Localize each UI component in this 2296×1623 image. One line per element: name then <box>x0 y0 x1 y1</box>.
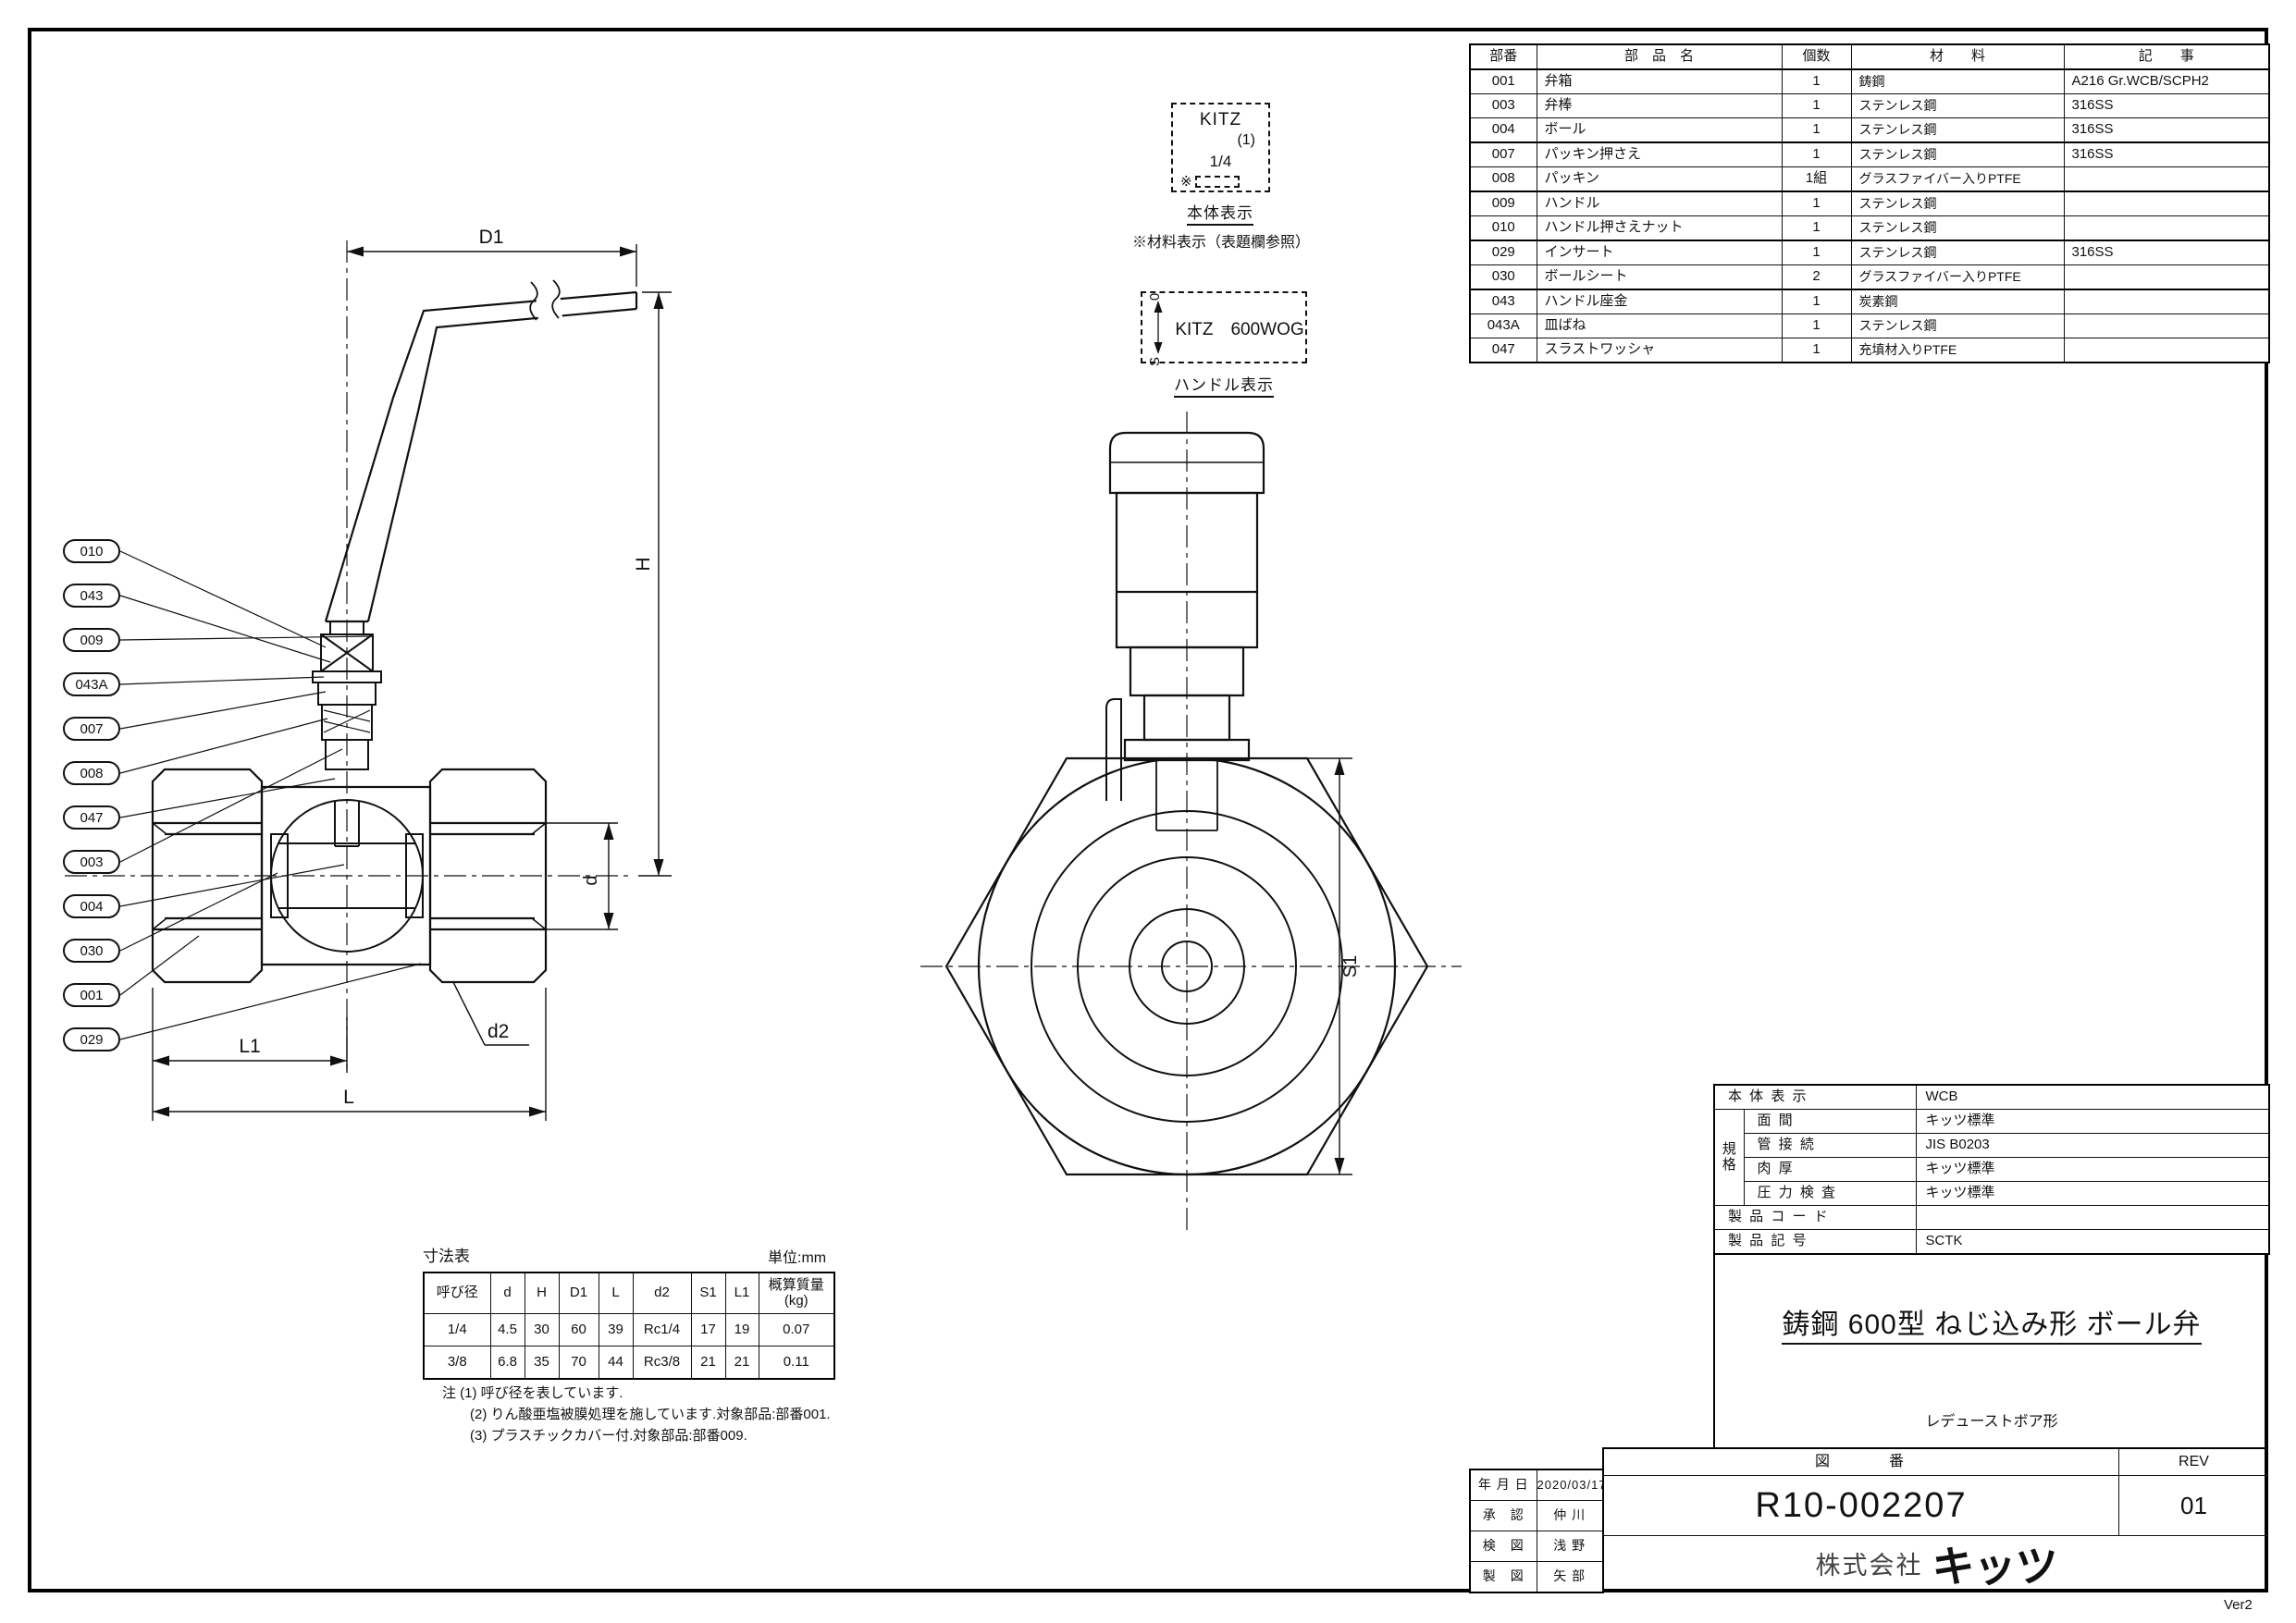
callout-004: 004 <box>63 894 120 918</box>
table-row: 047スラストワッシャ1充填材入りPTFE <box>1470 338 2269 363</box>
cell: 0.07 <box>759 1314 834 1346</box>
col-qty: 個数 <box>1782 44 1851 69</box>
callout-label: 010 <box>80 544 103 559</box>
spec-label: 圧 力 検 査 <box>1744 1182 1916 1206</box>
part-remarks: 316SS <box>2064 240 2269 265</box>
callout-029: 029 <box>63 1027 120 1051</box>
cell: 19 <box>725 1314 759 1346</box>
part-name: ボール <box>1537 118 1782 143</box>
col-remarks: 記 事 <box>2064 44 2269 69</box>
callout-label: 009 <box>80 633 103 648</box>
callout-009: 009 <box>63 628 120 652</box>
part-material: ステンレス鋼 <box>1851 216 2064 241</box>
table-row: 003弁棒1ステンレス鋼316SS <box>1470 94 2269 118</box>
part-no: 001 <box>1470 69 1537 94</box>
part-remarks <box>2064 167 2269 192</box>
callout-label: 043 <box>80 588 103 604</box>
part-qty: 1 <box>1782 216 1851 241</box>
drawing-subtitle: レデューストボア形 <box>1715 1408 2268 1431</box>
table-row: 3/86.8357044Rc3/821210.11 <box>424 1346 834 1380</box>
callout-label: 003 <box>80 855 103 870</box>
callout-003: 003 <box>63 850 120 874</box>
part-qty: 1 <box>1782 94 1851 118</box>
part-name: ハンドル押さえナット <box>1537 216 1782 241</box>
col-part-name: 部 品 名 <box>1537 44 1782 69</box>
part-remarks <box>2064 216 2269 241</box>
body-marking-size: 1/4 <box>1173 153 1268 171</box>
spec-value: キッツ標準 <box>1916 1110 2269 1134</box>
spec-value: キッツ標準 <box>1916 1182 2269 1206</box>
rev-header: REV <box>2119 1449 2268 1476</box>
cell: 44 <box>599 1346 633 1380</box>
table-row: 承 認 仲 川 <box>1470 1501 1603 1531</box>
table-row: 規 格 面 間 キッツ標準 <box>1714 1110 2269 1134</box>
part-qty: 1組 <box>1782 167 1851 192</box>
version-tag: Ver2 <box>2224 1597 2253 1613</box>
table-row: 肉 厚 キッツ標準 <box>1714 1158 2269 1182</box>
callout-label: 007 <box>80 721 103 737</box>
cell: 4.5 <box>490 1314 525 1346</box>
part-qty: 1 <box>1782 240 1851 265</box>
cell: 6.8 <box>490 1346 525 1380</box>
table-row: 029インサート1ステンレス鋼316SS <box>1470 240 2269 265</box>
dim-table-title: 寸法表 <box>423 1243 470 1266</box>
spec-value: WCB <box>1916 1085 2269 1110</box>
drawing-title: 鋳鋼 600型 ねじ込み形 ボール弁 <box>1715 1301 2268 1342</box>
handle-marking-caption-text: ハンドル表示 <box>1174 376 1274 398</box>
rev-number: 01 <box>2119 1476 2268 1535</box>
spec-label: 面 間 <box>1744 1110 1916 1134</box>
part-qty: 1 <box>1782 191 1851 216</box>
part-no: 008 <box>1470 167 1537 192</box>
col-part-no: 部番 <box>1470 44 1537 69</box>
appr-label: 承 認 <box>1470 1501 1537 1531</box>
appr-label: 製 図 <box>1470 1562 1537 1593</box>
group-char: 規 <box>1715 1142 1744 1158</box>
spec-value: JIS B0203 <box>1916 1134 2269 1158</box>
body-marking-note-ref: (1) <box>1237 132 1255 149</box>
table-row: 043A皿ばね1ステンレス鋼 <box>1470 314 2269 338</box>
spec-label: 管 接 続 <box>1744 1134 1916 1158</box>
appr-value: 浅 野 <box>1537 1531 1603 1562</box>
col-L: L <box>599 1273 633 1314</box>
reference-mark: ※ <box>1180 173 1192 190</box>
part-no: 004 <box>1470 118 1537 143</box>
part-remarks <box>2064 314 2269 338</box>
handle-marking-box <box>1141 291 1307 363</box>
cell: 70 <box>559 1346 599 1380</box>
part-material: ステンレス鋼 <box>1851 240 2064 265</box>
callout-010: 010 <box>63 539 120 563</box>
parts-table: 部番 部 品 名 個数 材 料 記 事 001弁箱1鋳鋼A216 Gr.WCB/… <box>1469 43 2270 363</box>
col-mass-line1: 概算質量 <box>759 1278 834 1294</box>
part-qty: 1 <box>1782 338 1851 363</box>
group-char: 格 <box>1715 1158 1744 1174</box>
part-qty: 1 <box>1782 118 1851 143</box>
spec-group-kikaku: 規 格 <box>1714 1110 1744 1206</box>
part-no: 043 <box>1470 289 1537 314</box>
table-row: 007パッキン押さえ1ステンレス鋼316SS <box>1470 142 2269 167</box>
table-row: 030ボールシート2グラスファイバー入りPTFE <box>1470 265 2269 290</box>
drawing-number-block: 図 番 REV R10-002207 01 株式会社 キッツ <box>1602 1447 2268 1591</box>
title-area: 鋳鋼 600型 ねじ込み形 ボール弁 レデューストボア形 <box>1713 1246 2268 1447</box>
drawing-sheet: D1 H d L1 L d2 <box>0 0 2296 1623</box>
spec-label: 肉 厚 <box>1744 1158 1916 1182</box>
col-mass: 概算質量 (kg) <box>759 1273 834 1314</box>
table-row: 製 図 矢 部 <box>1470 1562 1603 1593</box>
col-mass-line2: (kg) <box>759 1294 834 1309</box>
part-material: グラスファイバー入りPTFE <box>1851 167 2064 192</box>
drawing-number-header: 図 番 <box>1604 1449 2119 1476</box>
cell: 17 <box>691 1314 725 1346</box>
callout-047: 047 <box>63 805 120 830</box>
col-D1: D1 <box>559 1273 599 1314</box>
col-L1: L1 <box>725 1273 759 1314</box>
part-material: 鋳鋼 <box>1851 69 2064 94</box>
callout-label: 043A <box>75 677 107 693</box>
part-name: 弁箱 <box>1537 69 1782 94</box>
part-remarks <box>2064 338 2269 363</box>
note-2: (2) りん酸亜塩被膜処理を施しています.対象部品:部番001. <box>470 1404 831 1423</box>
col-H: H <box>525 1273 559 1314</box>
col-nominal: 呼び径 <box>424 1273 490 1314</box>
part-no: 010 <box>1470 216 1537 241</box>
drawing-title-text: 鋳鋼 600型 ねじ込み形 ボール弁 <box>1782 1309 2201 1345</box>
callout-001: 001 <box>63 983 120 1007</box>
part-qty: 1 <box>1782 289 1851 314</box>
appr-value: 2020/03/17 <box>1537 1469 1603 1501</box>
part-name: ハンドル <box>1537 191 1782 216</box>
drawing-number: R10-002207 <box>1604 1476 2119 1535</box>
spec-value <box>1916 1206 2269 1230</box>
part-material: ステンレス鋼 <box>1851 118 2064 143</box>
callout-043A: 043A <box>63 672 120 696</box>
cell: 21 <box>691 1346 725 1380</box>
part-name: ボールシート <box>1537 265 1782 290</box>
note-1: 注 (1) 呼び径を表しています. <box>442 1383 623 1402</box>
table-row: 043ハンドル座金1炭素鋼 <box>1470 289 2269 314</box>
cell: 21 <box>725 1346 759 1380</box>
part-material: 充填材入りPTFE <box>1851 338 2064 363</box>
spec-table: 本 体 表 示 WCB 規 格 面 間 キッツ標準 管 接 続 JIS B020… <box>1713 1084 2270 1255</box>
cell: 39 <box>599 1314 633 1346</box>
table-row: 本 体 表 示 WCB <box>1714 1085 2269 1110</box>
part-name: ハンドル座金 <box>1537 289 1782 314</box>
callout-030: 030 <box>63 939 120 963</box>
col-d: d <box>490 1273 525 1314</box>
parts-table-header: 部番 部 品 名 個数 材 料 記 事 <box>1470 44 2269 69</box>
callout-label: 001 <box>80 988 103 1003</box>
material-placeholder-box <box>1195 176 1240 188</box>
callout-008: 008 <box>63 761 120 785</box>
body-marking-caption: 本体表示 <box>1153 200 1288 223</box>
material-note: ※材料表示（表題欄参照） <box>1055 229 1388 252</box>
body-marking-box: KITZ (1) 1/4 ※ <box>1171 103 1270 192</box>
part-no: 047 <box>1470 338 1537 363</box>
appr-value: 矢 部 <box>1537 1562 1603 1593</box>
callout-label: 029 <box>80 1032 103 1048</box>
callout-label: 004 <box>80 899 103 915</box>
part-material: ステンレス鋼 <box>1851 314 2064 338</box>
kitz-logo: キッツ <box>1932 1533 2057 1594</box>
cell: 35 <box>525 1346 559 1380</box>
part-no: 030 <box>1470 265 1537 290</box>
cell: Rc1/4 <box>633 1314 691 1346</box>
appr-label: 年 月 日 <box>1470 1469 1537 1501</box>
part-name: 弁棒 <box>1537 94 1782 118</box>
part-remarks: 316SS <box>2064 94 2269 118</box>
part-no: 007 <box>1470 142 1537 167</box>
part-no: 009 <box>1470 191 1537 216</box>
table-row: 009ハンドル1ステンレス鋼 <box>1470 191 2269 216</box>
part-name: インサート <box>1537 240 1782 265</box>
cell: Rc3/8 <box>633 1346 691 1380</box>
callout-label: 030 <box>80 943 103 959</box>
part-remarks: 316SS <box>2064 118 2269 143</box>
part-remarks <box>2064 289 2269 314</box>
part-qty: 1 <box>1782 69 1851 94</box>
part-no: 003 <box>1470 94 1537 118</box>
approval-table: 年 月 日 2020/03/17 承 認 仲 川 検 図 浅 野 製 図 矢 部 <box>1469 1469 1604 1593</box>
part-material: ステンレス鋼 <box>1851 142 2064 167</box>
part-name: パッキン <box>1537 167 1782 192</box>
part-remarks <box>2064 191 2269 216</box>
part-remarks: 316SS <box>2064 142 2269 167</box>
part-material: ステンレス鋼 <box>1851 94 2064 118</box>
part-qty: 1 <box>1782 142 1851 167</box>
table-row: 検 図 浅 野 <box>1470 1531 1603 1562</box>
appr-label: 検 図 <box>1470 1531 1537 1562</box>
table-row: 年 月 日 2020/03/17 <box>1470 1469 1603 1501</box>
cell: 0.11 <box>759 1346 834 1380</box>
callout-label: 008 <box>80 766 103 781</box>
callout-007: 007 <box>63 717 120 741</box>
table-row: 008パッキン1組グラスファイバー入りPTFE <box>1470 167 2269 192</box>
part-material: 炭素鋼 <box>1851 289 2064 314</box>
col-d2: d2 <box>633 1273 691 1314</box>
part-material: ステンレス鋼 <box>1851 191 2064 216</box>
part-no: 029 <box>1470 240 1537 265</box>
callout-label: 047 <box>80 810 103 826</box>
handle-marking-caption: ハンドル表示 <box>1164 372 1284 395</box>
part-name: 皿ばね <box>1537 314 1782 338</box>
table-row: 製 品 コ ー ド <box>1714 1206 2269 1230</box>
part-name: パッキン押さえ <box>1537 142 1782 167</box>
company-prefix: 株式会社 <box>1816 1545 1923 1581</box>
part-name: スラストワッシャ <box>1537 338 1782 363</box>
table-row: 001弁箱1鋳鋼A216 Gr.WCB/SCPH2 <box>1470 69 2269 94</box>
body-marking-brand: KITZ <box>1173 110 1268 130</box>
part-remarks <box>2064 265 2269 290</box>
cell: 3/8 <box>424 1346 490 1380</box>
dimension-table: 呼び径 d H D1 L d2 S1 L1 概算質量 (kg) 1/44.530… <box>423 1272 835 1380</box>
callout-043: 043 <box>63 584 120 608</box>
part-no: 043A <box>1470 314 1537 338</box>
table-row: 管 接 続 JIS B0203 <box>1714 1134 2269 1158</box>
part-qty: 1 <box>1782 314 1851 338</box>
appr-value: 仲 川 <box>1537 1501 1603 1531</box>
table-row: 圧 力 検 査 キッツ標準 <box>1714 1182 2269 1206</box>
part-qty: 2 <box>1782 265 1851 290</box>
table-row: 1/44.5306039Rc1/417190.07 <box>424 1314 834 1346</box>
dim-table-unit: 単位:mm <box>768 1245 826 1267</box>
table-row: 010ハンドル押さえナット1ステンレス鋼 <box>1470 216 2269 241</box>
company-logo: 株式会社 キッツ <box>1604 1535 2268 1591</box>
spec-value: キッツ標準 <box>1916 1158 2269 1182</box>
spec-label: 本 体 表 示 <box>1714 1085 1916 1110</box>
body-marking-caption-text: 本体表示 <box>1187 204 1253 226</box>
col-S1: S1 <box>691 1273 725 1314</box>
body-marking-material-slot: ※ <box>1180 173 1240 190</box>
spec-label: 製 品 コ ー ド <box>1714 1206 1916 1230</box>
cell: 30 <box>525 1314 559 1346</box>
cell: 60 <box>559 1314 599 1346</box>
note-3: (3) プラスチックカバー付.対象部品:部番009. <box>470 1425 747 1445</box>
col-material: 材 料 <box>1851 44 2064 69</box>
part-material: グラスファイバー入りPTFE <box>1851 265 2064 290</box>
table-row: 004ボール1ステンレス鋼316SS <box>1470 118 2269 143</box>
part-remarks: A216 Gr.WCB/SCPH2 <box>2064 69 2269 94</box>
dim-table-header: 呼び径 d H D1 L d2 S1 L1 概算質量 (kg) <box>424 1273 834 1314</box>
cell: 1/4 <box>424 1314 490 1346</box>
